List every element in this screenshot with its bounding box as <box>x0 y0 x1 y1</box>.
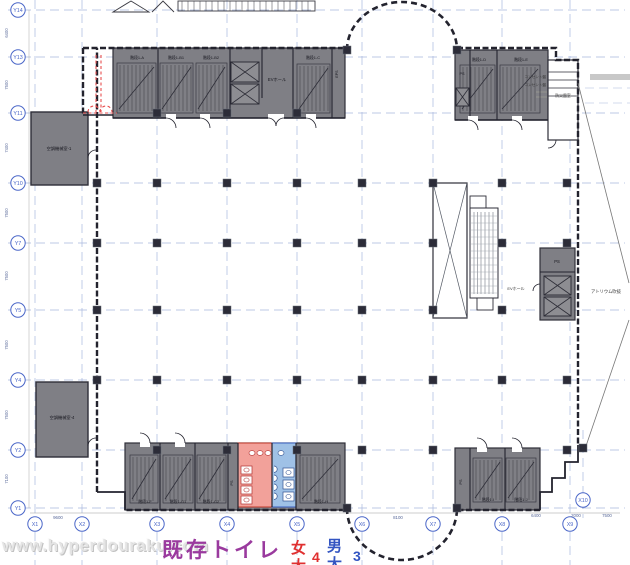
escalator-landing-bottom <box>477 298 493 310</box>
elevator-shaft <box>544 297 571 316</box>
grid-bubble-x6-label: X6 <box>359 522 366 528</box>
grid-bubble-y0-label: Y14 <box>13 8 23 14</box>
caption-male-count: 3 <box>353 548 361 564</box>
dim-label: 7500 <box>4 80 9 90</box>
red-dashed-arc <box>100 106 112 112</box>
column <box>93 306 101 314</box>
eps-label: EPS <box>335 70 339 78</box>
column <box>498 376 506 384</box>
grid-bubble-y4-label: Y7 <box>15 241 22 247</box>
column <box>343 46 351 54</box>
dim-label: 7100 <box>4 474 9 484</box>
urinal-icon <box>274 493 277 499</box>
gray-band <box>590 74 630 80</box>
grid-bubble-x8: X8 <box>495 517 509 531</box>
stair-label: 階段1-J <box>514 497 527 502</box>
column <box>358 376 366 384</box>
stair-label: 階段1-I <box>482 497 494 502</box>
grid-bubble-y5-label: Y5 <box>15 308 22 314</box>
column <box>429 446 437 454</box>
stair-label: 階段1-B2 <box>203 55 219 60</box>
column <box>453 504 461 512</box>
grid-bubble-x7-label: X7 <box>430 522 437 528</box>
stair-label: 階段1-H <box>314 499 328 504</box>
wall-step-left <box>97 492 125 510</box>
dim-label: 7500 <box>602 513 612 518</box>
caption-male-sub: 大 <box>327 553 342 565</box>
column <box>343 504 351 512</box>
column <box>429 179 437 187</box>
stair-label: 階段1-E <box>514 57 528 62</box>
escalator-void <box>433 183 498 318</box>
grid-bubble-y1-label: Y13 <box>13 55 23 61</box>
stair-label: 階段1-G1 <box>170 499 186 504</box>
grid-bubble-x5: X5 <box>290 517 304 531</box>
elevator-shaft <box>456 88 469 106</box>
stairs <box>117 62 571 503</box>
column <box>358 239 366 247</box>
ev-hall-top-label: EVホール <box>268 77 286 82</box>
urinal-icon <box>274 484 277 490</box>
column <box>293 179 301 187</box>
men-stall <box>283 480 294 489</box>
grid-bubble-y0: Y14 <box>11 3 25 17</box>
dim-label: 7400 <box>4 143 9 153</box>
column <box>358 446 366 454</box>
grid-bubble-y3: Y10 <box>11 176 25 190</box>
grid-bubble-x7: X7 <box>426 517 440 531</box>
grid-bubble-x4: X4 <box>220 517 234 531</box>
column <box>93 179 101 187</box>
stair-label: 階段1-G2 <box>203 499 219 504</box>
column <box>293 239 301 247</box>
caption-female-count: 4 <box>312 549 320 565</box>
grid-bubble-x1-label: X1 <box>32 522 39 528</box>
urinal-icon <box>274 475 277 481</box>
column <box>93 376 101 384</box>
bay-arc-top <box>347 2 457 50</box>
top-structure-bar <box>178 1 315 11</box>
column <box>498 239 506 247</box>
grid-bubble-x10: X10 <box>576 493 590 507</box>
ev-hall-right-label: EVホール <box>507 286 524 291</box>
column <box>223 109 231 117</box>
grid-bubble-y6-label: Y4 <box>15 378 22 384</box>
sink-icon <box>265 451 271 456</box>
dim-label: 9600 <box>53 515 63 520</box>
door-arc <box>548 140 556 148</box>
machine-room-4-label: 空調機械室-4 <box>50 414 75 421</box>
grid-bubble-y7: Y2 <box>11 443 25 457</box>
women-stall <box>241 476 252 484</box>
column <box>153 179 161 187</box>
escalator-landing-top <box>470 196 486 208</box>
grid-bubble-y2: Y11 <box>11 106 25 120</box>
door-arc <box>533 284 540 291</box>
ps-label: PS <box>554 259 560 264</box>
grid-bubble-x8-label: X8 <box>499 522 506 528</box>
door-gap <box>140 439 150 447</box>
door-gap <box>512 444 522 452</box>
dim-label: 7500 <box>4 271 9 281</box>
stair-label: 階段1-A <box>130 55 144 60</box>
disaster-room-label: 防災盤室 <box>555 93 571 98</box>
grid-bubble-x6: X6 <box>355 517 369 531</box>
women-stall <box>241 466 252 474</box>
door-arc <box>88 438 96 446</box>
grid-bubble-y6: Y4 <box>11 373 25 387</box>
grid-bubble-x2-label: X2 <box>79 522 86 528</box>
caption-existing-toilet: 既存トイレ <box>162 534 282 564</box>
tiny-label-smudge <box>536 96 547 98</box>
dim-label: 6400 <box>531 513 541 518</box>
top-structure-chevron <box>152 1 174 12</box>
wall-corner-steps <box>540 445 578 510</box>
demolition-marks <box>83 55 117 113</box>
column <box>429 239 437 247</box>
floorplan-canvas: X1X2X3X4X5X6X7X8X9X10Y14Y13Y11Y10Y7Y5Y4Y… <box>0 0 630 565</box>
elevator-shaft <box>231 62 259 82</box>
ps-label: PS <box>459 479 463 485</box>
dim-label: 6400 <box>4 28 9 38</box>
women-stall <box>241 496 252 504</box>
dim-label: 8100 <box>393 515 403 520</box>
column <box>293 306 301 314</box>
elevator-shaft <box>544 276 571 295</box>
column <box>453 46 461 54</box>
caption-female-sub: 大 <box>291 555 306 565</box>
column <box>153 239 161 247</box>
men-stall <box>283 468 294 477</box>
diagonal-line <box>586 320 629 446</box>
stair-label: 階段1-B1 <box>168 55 184 60</box>
outlet-panel-label: コンセント盤 <box>524 74 546 79</box>
grid-bubble-x1: X1 <box>28 517 42 531</box>
grid-bubble-y1: Y13 <box>11 50 25 64</box>
column <box>153 376 161 384</box>
grid-bubble-x3: X3 <box>150 517 164 531</box>
column <box>498 179 506 187</box>
elevator-shaft <box>231 84 259 104</box>
machine-room-1-label: 空調機械室-1 <box>47 145 72 152</box>
men-stall <box>283 492 294 501</box>
door-gap <box>175 439 185 447</box>
column <box>429 306 437 314</box>
floorplan-svg: X1X2X3X4X5X6X7X8X9X10Y14Y13Y11Y10Y7Y5Y4Y… <box>0 0 630 565</box>
dim-label: 7500 <box>4 208 9 218</box>
column <box>563 239 571 247</box>
column <box>498 306 506 314</box>
sink-icon <box>278 451 284 456</box>
women-stall <box>241 486 252 494</box>
column <box>223 239 231 247</box>
grid-bubble-y8-label: Y1 <box>15 506 22 512</box>
top-structure <box>113 1 315 12</box>
column <box>358 306 366 314</box>
grid-bubble-y5: Y5 <box>11 303 25 317</box>
column <box>563 376 571 384</box>
grid-bubble-x9: X9 <box>563 517 577 531</box>
stair-label: 階段1-D <box>472 57 486 62</box>
door-gap <box>477 444 487 452</box>
grid-bubble-x2: X2 <box>75 517 89 531</box>
column <box>223 446 231 454</box>
column <box>293 446 301 454</box>
grid-bubble-y4: Y7 <box>11 236 25 250</box>
stair-label: 階段1-C <box>306 55 320 60</box>
grid-bubble-y3-label: Y10 <box>13 181 23 187</box>
column <box>579 444 587 452</box>
grid-bubble-x10-label: X10 <box>578 498 588 504</box>
outlet-panel-label: コンセント盤 <box>524 82 546 87</box>
dim-label: 2000 <box>571 513 581 518</box>
urinal-icon <box>274 466 277 472</box>
grid-bubble-y8: Y1 <box>11 501 25 515</box>
top-structure-chevron <box>113 1 149 12</box>
column <box>293 109 301 117</box>
column <box>293 376 301 384</box>
dim-label: 7500 <box>4 410 9 420</box>
column <box>153 109 161 117</box>
grid-bubble-x3-label: X3 <box>154 522 161 528</box>
column <box>153 446 161 454</box>
column <box>93 239 101 247</box>
grid-bubble-y2-label: Y11 <box>13 111 22 117</box>
column <box>358 179 366 187</box>
column <box>223 306 231 314</box>
sink-icon <box>257 451 263 456</box>
sink-icon <box>249 451 255 456</box>
grid-bubble-x5-label: X5 <box>294 522 301 528</box>
grid-bubble-y7-label: Y2 <box>15 448 22 454</box>
grid-bubble-x4-label: X4 <box>224 522 231 528</box>
dim-label: 7500 <box>4 340 9 350</box>
column <box>563 446 571 454</box>
column <box>223 376 231 384</box>
column <box>429 376 437 384</box>
column <box>563 179 571 187</box>
tiny-label-smudge <box>536 91 547 93</box>
stair-label: 階段1-F <box>138 499 152 504</box>
ps-label: PS <box>459 72 465 76</box>
atrium-label: アトリウム吹抜 <box>591 288 622 295</box>
ps-label: PS <box>230 480 234 486</box>
column <box>153 306 161 314</box>
column <box>223 179 231 187</box>
door-arc <box>88 150 96 158</box>
grid-bubble-x9-label: X9 <box>567 522 574 528</box>
